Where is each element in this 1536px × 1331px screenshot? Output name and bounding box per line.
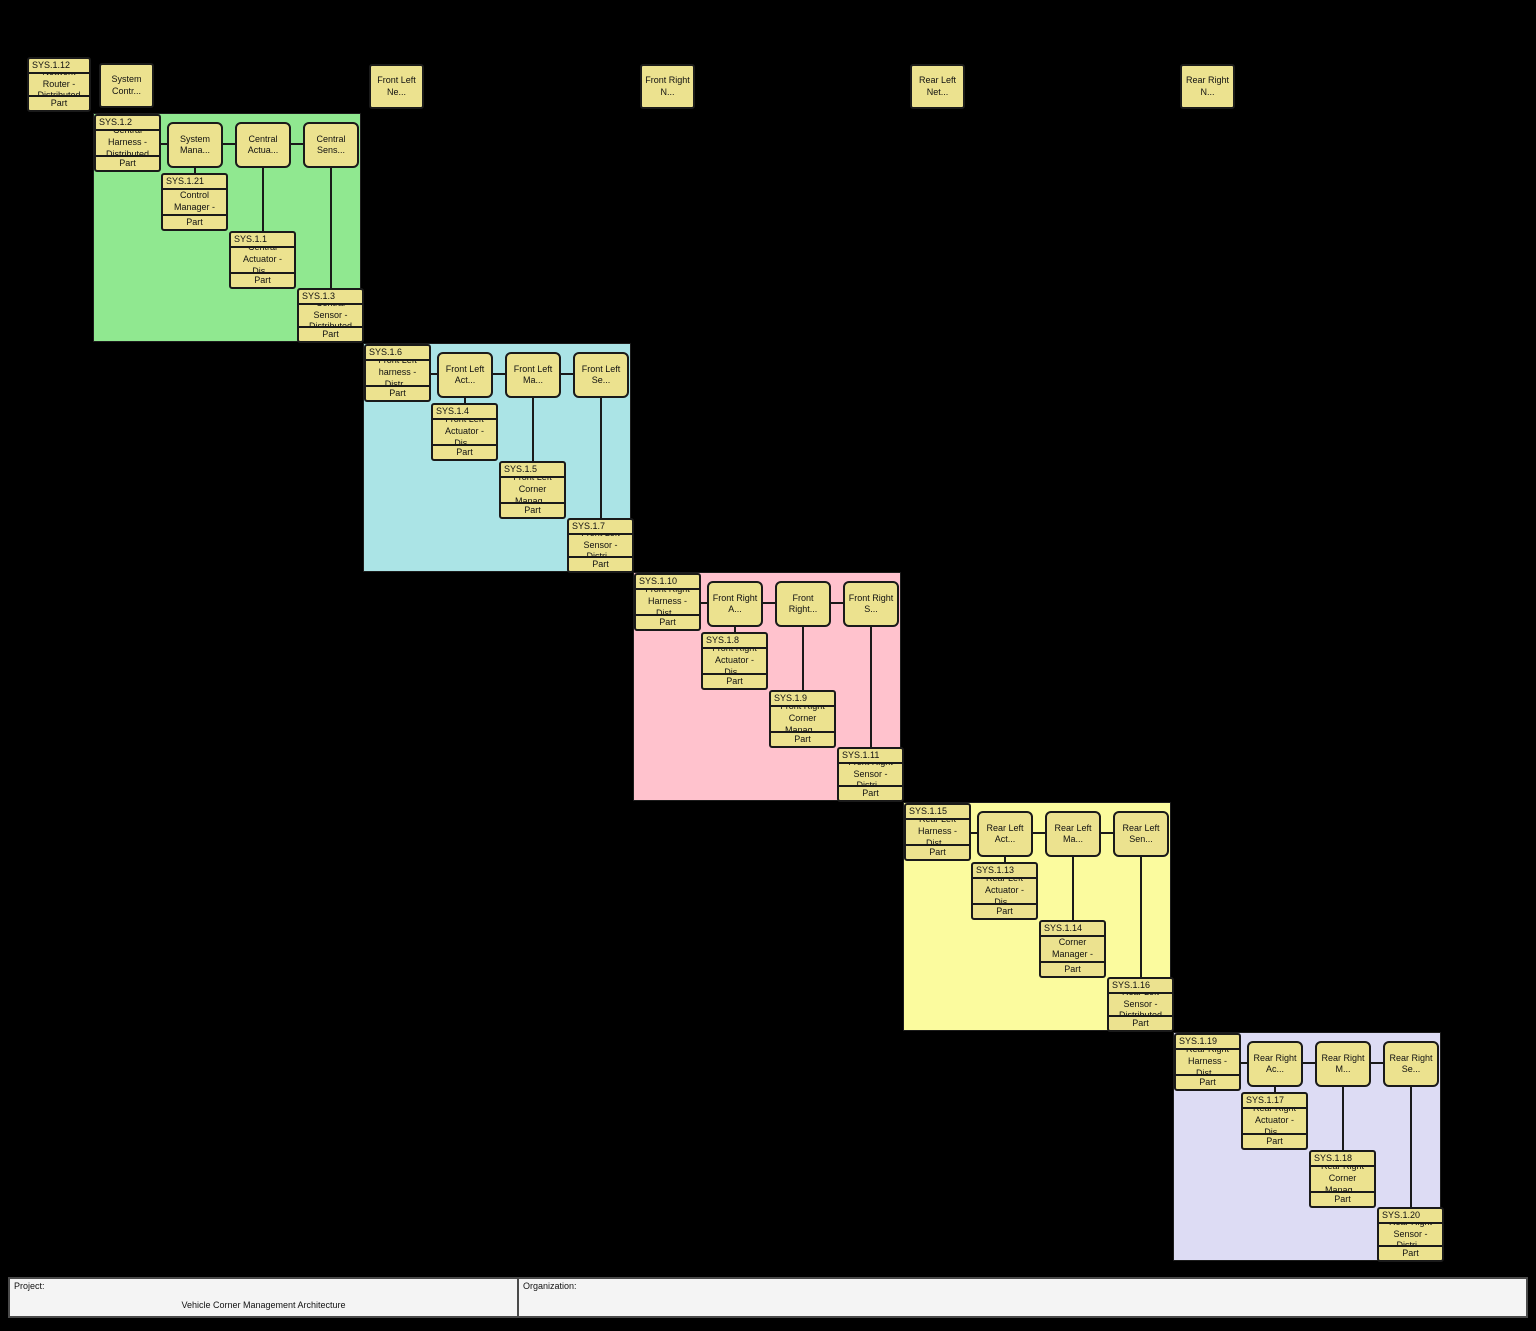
node-kind: Part bbox=[96, 155, 159, 170]
connector bbox=[802, 626, 804, 691]
node-id: SYS.1.17 bbox=[1243, 1094, 1306, 1109]
region-central[interactable]: SYS.1.2 Central Harness - Distributed Pa… bbox=[93, 113, 361, 342]
node-name: System Control Manager - Dis... bbox=[163, 190, 226, 214]
connector bbox=[262, 167, 264, 232]
title-block-project-cell: Project: Vehicle Corner Management Archi… bbox=[10, 1279, 519, 1316]
node-front-right-corner-manager-part[interactable]: SYS.1.9 Front Right Corner Manag... Part bbox=[769, 690, 836, 748]
node-front-left-network[interactable]: Front Left Ne... bbox=[369, 64, 424, 109]
node-id: SYS.1.21 bbox=[163, 175, 226, 190]
connector bbox=[830, 602, 844, 604]
node-id: SYS.1.14 bbox=[1041, 922, 1104, 937]
node-front-right-sensor-part[interactable]: SYS.1.11 Front Right Sensor - Distri... … bbox=[837, 747, 904, 802]
node-rear-right-sensor[interactable]: Rear Right Se... bbox=[1383, 1041, 1439, 1087]
node-name: Front Right Harness - Dist... bbox=[636, 590, 699, 614]
connector bbox=[1100, 832, 1114, 834]
node-front-right-actuator-part[interactable]: SYS.1.8 Front Right Actuator - Dis... Pa… bbox=[701, 632, 768, 690]
node-front-left-corner-manager-part[interactable]: SYS.1.5 Front Left Corner Manag... Part bbox=[499, 461, 566, 519]
connector bbox=[1370, 1062, 1384, 1064]
node-id: SYS.1.3 bbox=[299, 290, 362, 305]
node-kind: Part bbox=[366, 385, 429, 400]
node-front-right-network[interactable]: Front Right N... bbox=[640, 64, 695, 109]
node-name: Rear Right Actuator - Dis... bbox=[1243, 1109, 1306, 1133]
node-rear-right-sensor-part[interactable]: SYS.1.20 Rear Right Sensor - Distri... P… bbox=[1377, 1207, 1444, 1262]
node-rear-right-actuator[interactable]: Rear Right Ac... bbox=[1247, 1041, 1303, 1087]
node-kind: Part bbox=[839, 785, 902, 800]
node-id: SYS.1.2 bbox=[96, 116, 159, 131]
node-rear-left-sensor-part[interactable]: SYS.1.16 Rear Left Sensor - Distributed … bbox=[1107, 977, 1174, 1032]
node-kind: Part bbox=[1176, 1074, 1239, 1089]
node-id: SYS.1.20 bbox=[1379, 1209, 1442, 1224]
node-name: Front Left Actuator - Dis... bbox=[433, 420, 496, 444]
node-system-control-manager-part[interactable]: SYS.1.21 System Control Manager - Dis...… bbox=[161, 173, 228, 231]
node-name: Rear Left Actuator - Dis... bbox=[973, 879, 1036, 903]
node-front-left-sensor-part[interactable]: SYS.1.7 Front Left Sensor - Distri... Pa… bbox=[567, 518, 634, 573]
node-central-sensor-part[interactable]: SYS.1.3 Central Sensor - Distributed Par… bbox=[297, 288, 364, 343]
node-name: Rear Left Sensor - Distributed bbox=[1109, 994, 1172, 1015]
node-kind: Part bbox=[433, 444, 496, 459]
connector bbox=[1032, 832, 1046, 834]
node-kind: Part bbox=[703, 673, 766, 688]
region-front-left[interactable]: SYS.1.6 Front Left harness - Distr... Pa… bbox=[363, 343, 631, 572]
node-rear-right-manager[interactable]: Rear Right M... bbox=[1315, 1041, 1371, 1087]
node-name: Front Left Sensor - Distri... bbox=[569, 535, 632, 556]
node-kind: Part bbox=[1311, 1191, 1374, 1206]
node-id: SYS.1.16 bbox=[1109, 979, 1172, 994]
node-rear-left-harness[interactable]: SYS.1.15 Rear Left Harness - Dist... Par… bbox=[904, 803, 971, 861]
node-kind: Part bbox=[569, 556, 632, 571]
node-central-actuator-part[interactable]: SYS.1.1 Central Actuator - Dis... Part bbox=[229, 231, 296, 289]
node-kind: Part bbox=[771, 731, 834, 746]
node-id: SYS.1.12 bbox=[29, 59, 89, 74]
node-id: SYS.1.5 bbox=[501, 463, 564, 478]
node-id: SYS.1.6 bbox=[366, 346, 429, 361]
node-rear-left-sensor[interactable]: Rear Left Sen... bbox=[1113, 811, 1169, 857]
node-id: SYS.1.1 bbox=[231, 233, 294, 248]
node-id: SYS.1.18 bbox=[1311, 1152, 1374, 1167]
node-front-right-harness[interactable]: SYS.1.10 Front Right Harness - Dist... P… bbox=[634, 573, 701, 631]
title-block: Project: Vehicle Corner Management Archi… bbox=[8, 1277, 1528, 1318]
node-name: Central Actuator - Dis... bbox=[231, 248, 294, 272]
node-front-right-manager[interactable]: Front Right... bbox=[775, 581, 831, 627]
connector bbox=[560, 373, 574, 375]
node-front-left-manager[interactable]: Front Left Ma... bbox=[505, 352, 561, 398]
node-name: Rear Right Harness - Dist... bbox=[1176, 1050, 1239, 1074]
node-system-controller[interactable]: System Contr... bbox=[99, 63, 154, 108]
node-id: SYS.1.4 bbox=[433, 405, 496, 420]
node-name: Rear Right Sensor - Distri... bbox=[1379, 1224, 1442, 1245]
node-front-left-actuator[interactable]: Front Left Act... bbox=[437, 352, 493, 398]
node-name: Central Harness - Distributed bbox=[96, 131, 159, 155]
node-kind: Part bbox=[163, 214, 226, 229]
node-system-manager[interactable]: System Mana... bbox=[167, 122, 223, 168]
connector bbox=[762, 602, 776, 604]
node-name: Rear Left Harness - Dist... bbox=[906, 820, 969, 844]
node-id: SYS.1.7 bbox=[569, 520, 632, 535]
node-front-right-actuator[interactable]: Front Right A... bbox=[707, 581, 763, 627]
node-kind: Part bbox=[1243, 1133, 1306, 1148]
node-rear-left-actuator-part[interactable]: SYS.1.13 Rear Left Actuator - Dis... Par… bbox=[971, 862, 1038, 920]
connector bbox=[1140, 856, 1142, 978]
region-rear-right[interactable]: SYS.1.19 Rear Right Harness - Dist... Pa… bbox=[1173, 1032, 1441, 1261]
node-kind: Part bbox=[906, 844, 969, 859]
node-kind: Part bbox=[1041, 961, 1104, 976]
node-rear-left-corner-manager-part[interactable]: SYS.1.14 Rear Left Corner Manager - Dis.… bbox=[1039, 920, 1106, 978]
node-kind: Part bbox=[973, 903, 1036, 918]
region-rear-left[interactable]: SYS.1.15 Rear Left Harness - Dist... Par… bbox=[903, 802, 1171, 1031]
node-rear-right-actuator-part[interactable]: SYS.1.17 Rear Right Actuator - Dis... Pa… bbox=[1241, 1092, 1308, 1150]
node-kind: Part bbox=[231, 272, 294, 287]
node-name: Front Right Corner Manag... bbox=[771, 707, 834, 731]
node-front-left-sensor[interactable]: Front Left Se... bbox=[573, 352, 629, 398]
connector bbox=[492, 373, 506, 375]
node-id: SYS.1.10 bbox=[636, 575, 699, 590]
node-name: Front Left harness - Distr... bbox=[366, 361, 429, 385]
connector bbox=[1410, 1086, 1412, 1208]
node-name: Central Sensor - Distributed bbox=[299, 305, 362, 326]
node-name: Front Left Corner Manag... bbox=[501, 478, 564, 502]
node-front-left-actuator-part[interactable]: SYS.1.4 Front Left Actuator - Dis... Par… bbox=[431, 403, 498, 461]
connector bbox=[290, 143, 304, 145]
title-block-organization-cell: Organization: bbox=[519, 1279, 1526, 1316]
connector bbox=[330, 167, 332, 289]
node-rear-right-network[interactable]: Rear Right N... bbox=[1180, 64, 1235, 109]
connector bbox=[1302, 1062, 1316, 1064]
connector bbox=[222, 143, 236, 145]
node-id: SYS.1.15 bbox=[906, 805, 969, 820]
node-central-sensor[interactable]: Central Sens... bbox=[303, 122, 359, 168]
node-name: Network Router - Distributed bbox=[29, 74, 89, 95]
connector bbox=[1072, 856, 1074, 921]
node-front-right-sensor[interactable]: Front Right S... bbox=[843, 581, 899, 627]
node-network-router[interactable]: SYS.1.12 Network Router - Distributed Pa… bbox=[27, 57, 91, 112]
node-central-actuator[interactable]: Central Actua... bbox=[235, 122, 291, 168]
node-id: SYS.1.13 bbox=[973, 864, 1036, 879]
node-id: SYS.1.8 bbox=[703, 634, 766, 649]
node-kind: Part bbox=[501, 502, 564, 517]
project-label: Project: bbox=[14, 1281, 45, 1291]
node-kind: Part bbox=[1109, 1015, 1172, 1030]
node-front-left-harness[interactable]: SYS.1.6 Front Left harness - Distr... Pa… bbox=[364, 344, 431, 402]
region-front-right[interactable]: SYS.1.10 Front Right Harness - Dist... P… bbox=[633, 572, 901, 801]
node-name: Rear Right Corner Manag... bbox=[1311, 1167, 1374, 1191]
node-kind: Part bbox=[1379, 1245, 1442, 1260]
organization-label: Organization: bbox=[523, 1281, 577, 1291]
node-kind: Part bbox=[29, 95, 89, 110]
node-id: SYS.1.11 bbox=[839, 749, 902, 764]
project-value: Vehicle Corner Management Architecture bbox=[10, 1300, 517, 1310]
node-name: Rear Left Corner Manager - Dis... bbox=[1041, 937, 1104, 961]
node-central-harness[interactable]: SYS.1.2 Central Harness - Distributed Pa… bbox=[94, 114, 161, 172]
node-kind: Part bbox=[299, 326, 362, 341]
node-name: Front Right Actuator - Dis... bbox=[703, 649, 766, 673]
node-rear-right-harness[interactable]: SYS.1.19 Rear Right Harness - Dist... Pa… bbox=[1174, 1033, 1241, 1091]
node-id: SYS.1.9 bbox=[771, 692, 834, 707]
node-name: Front Right Sensor - Distri... bbox=[839, 764, 902, 785]
connector bbox=[870, 626, 872, 748]
connector bbox=[532, 397, 534, 462]
connector bbox=[1342, 1086, 1344, 1151]
node-id: SYS.1.19 bbox=[1176, 1035, 1239, 1050]
node-rear-right-corner-manager-part[interactable]: SYS.1.18 Rear Right Corner Manag... Part bbox=[1309, 1150, 1376, 1208]
node-rear-left-manager[interactable]: Rear Left Ma... bbox=[1045, 811, 1101, 857]
node-rear-left-actuator[interactable]: Rear Left Act... bbox=[977, 811, 1033, 857]
node-kind: Part bbox=[636, 614, 699, 629]
node-rear-left-network[interactable]: Rear Left Net... bbox=[910, 64, 965, 109]
connector bbox=[600, 397, 602, 519]
